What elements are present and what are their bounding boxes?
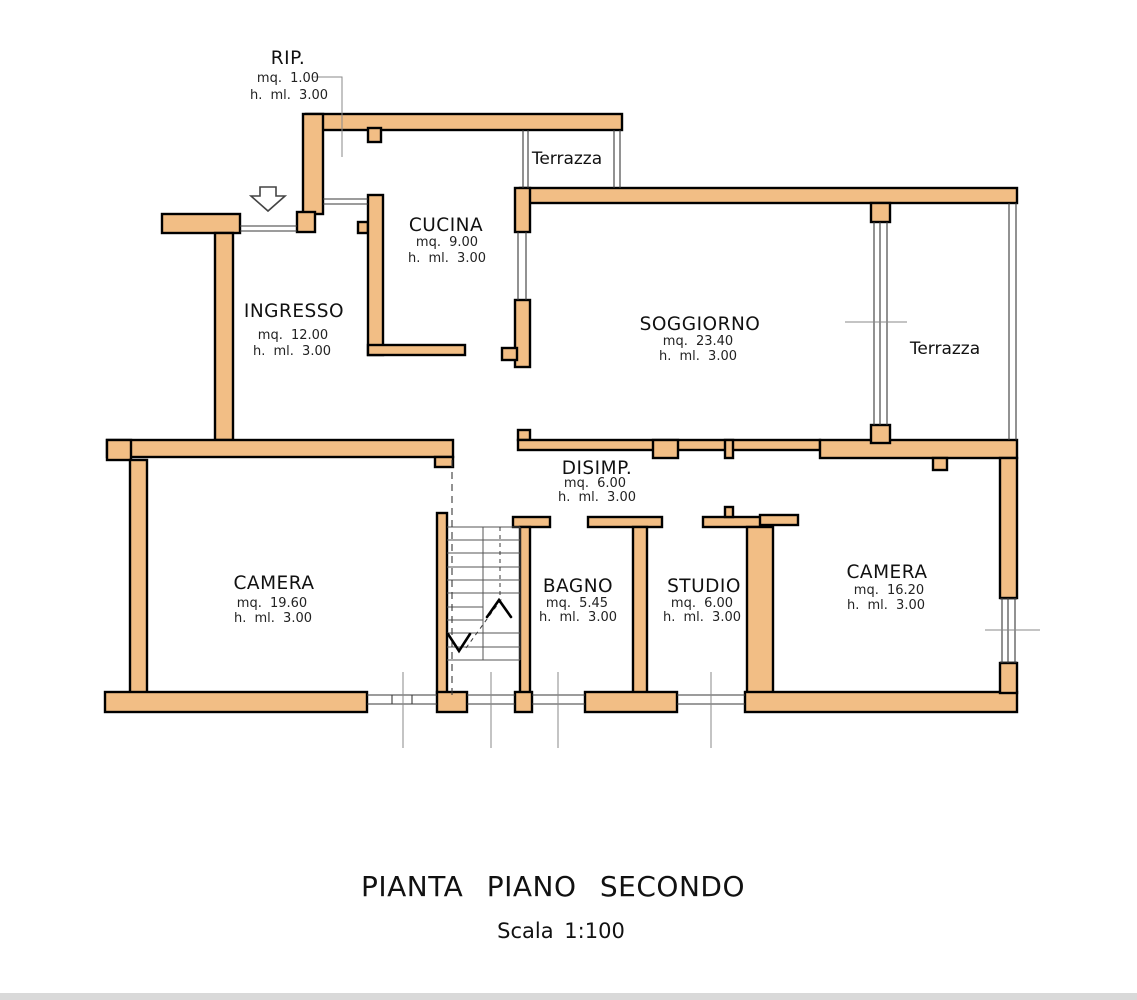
room-label-camera-right: CAMERA xyxy=(847,562,928,583)
title-block: PIANTA PIANO SECONDO Scala 1:100 xyxy=(361,870,745,943)
room-height-rip: h. ml. 3.00 xyxy=(250,88,328,103)
floor-plan-page: RIP. mq. 1.00 h. ml. 3.00 Terrazza CUCIN… xyxy=(0,0,1137,1000)
room-area-rip: mq. 1.00 xyxy=(257,71,319,86)
floor-plan-drawing: RIP. mq. 1.00 h. ml. 3.00 Terrazza CUCIN… xyxy=(0,0,1137,1000)
room-label-studio: STUDIO xyxy=(667,576,741,597)
cucina-soggiorno-window xyxy=(518,232,526,300)
room-label-cucina: CUCINA xyxy=(409,215,483,236)
room-label-terrazza-top: Terrazza xyxy=(531,149,602,169)
plan-title: PIANTA PIANO SECONDO xyxy=(361,870,745,903)
room-label-camera-left: CAMERA xyxy=(234,573,315,594)
room-label-terrazza-right: Terrazza xyxy=(909,339,980,359)
room-label-rip: RIP. xyxy=(271,48,305,69)
bottom-windows xyxy=(367,695,745,704)
room-height-disimp: h. ml. 3.00 xyxy=(558,490,636,505)
room-height-bagno: h. ml. 3.00 xyxy=(539,610,617,625)
entrance-door xyxy=(240,226,297,231)
page-edge xyxy=(0,993,1137,1000)
room-label-ingresso: INGRESSO xyxy=(244,301,344,322)
stair-treads xyxy=(447,527,520,660)
room-label-soggiorno: SOGGIORNO xyxy=(640,314,761,335)
room-height-soggiorno: h. ml. 3.00 xyxy=(659,349,737,364)
entrance-arrow-icon xyxy=(251,187,285,211)
room-height-cucina: h. ml. 3.00 xyxy=(408,251,486,266)
staircase xyxy=(447,460,520,700)
room-label-bagno: BAGNO xyxy=(543,576,613,597)
room-height-studio: h. ml. 3.00 xyxy=(663,610,741,625)
room-area-camera-left: mq. 19.60 xyxy=(237,596,307,611)
room-area-bagno: mq. 5.45 xyxy=(546,596,608,611)
plan-scale: Scala 1:100 xyxy=(497,919,625,943)
room-area-ingresso: mq. 12.00 xyxy=(258,328,328,343)
room-labels: RIP. mq. 1.00 h. ml. 3.00 Terrazza CUCIN… xyxy=(234,48,981,626)
room-height-camera-right: h. ml. 3.00 xyxy=(847,598,925,613)
room-area-cucina: mq. 9.00 xyxy=(416,235,478,250)
room-area-soggiorno: mq. 23.40 xyxy=(663,334,733,349)
terrazza-right-railing xyxy=(1009,203,1016,440)
room-area-disimp: mq. 6.00 xyxy=(564,476,626,491)
room-height-ingresso: h. ml. 3.00 xyxy=(253,344,331,359)
stair-down-arrow xyxy=(448,634,470,651)
rip-partition xyxy=(323,199,368,204)
room-area-camera-right: mq. 16.20 xyxy=(854,583,924,598)
room-area-studio: mq. 6.00 xyxy=(671,596,733,611)
soggiorno-terrazza-window xyxy=(874,222,887,425)
window-centerline-ticks xyxy=(403,322,1040,748)
room-height-camera-left: h. ml. 3.00 xyxy=(234,611,312,626)
